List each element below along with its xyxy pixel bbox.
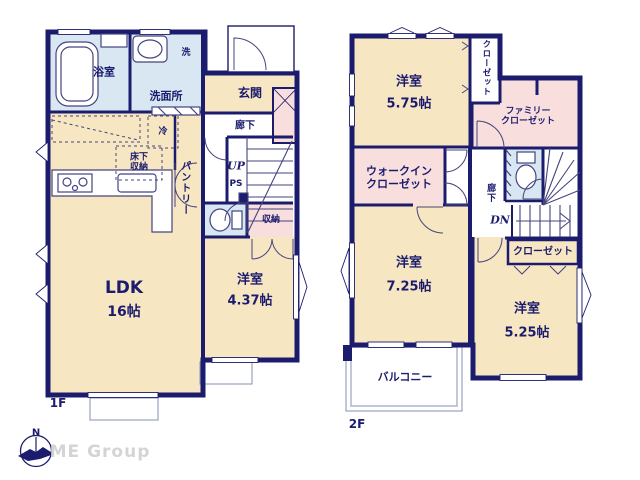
underfloor-storage-line1: 床下 bbox=[130, 153, 148, 163]
wic-line1: ウォークイン bbox=[366, 165, 432, 178]
room-size-bedroom2-2f: 7.25帖 bbox=[386, 281, 431, 296]
sliding-door-washroom bbox=[152, 107, 200, 115]
family-closet-line1: ファミリー bbox=[501, 107, 555, 117]
bedroom2-area-2f bbox=[352, 205, 470, 345]
floor-label-2f: 2F bbox=[349, 418, 366, 432]
room-label-bedroom-1f: 洋室 bbox=[237, 274, 263, 289]
room-label-wic: ウォークイン クローゼット bbox=[366, 165, 432, 190]
label-laundry: 洗 bbox=[181, 48, 190, 58]
compass-icon bbox=[18, 436, 54, 467]
room-label-bathroom: 浴室 bbox=[93, 67, 115, 80]
bedroom1-area-2f bbox=[352, 36, 470, 147]
porch-outline bbox=[228, 26, 294, 72]
room-label-closet-top-2f: クローゼット bbox=[480, 40, 490, 97]
toilet-icon-1f bbox=[210, 209, 242, 231]
room-label-bedroom3-2f: 洋室 bbox=[514, 303, 540, 318]
room-label-storage-1f: 収納 bbox=[262, 215, 280, 225]
room-size-ldk: 16帖 bbox=[107, 304, 140, 320]
room-label-bedroom1-2f: 洋室 bbox=[396, 76, 422, 91]
bay-window-2f-left bbox=[341, 248, 349, 294]
bay-window-1f bbox=[299, 262, 307, 312]
entrance-cabinet bbox=[273, 88, 297, 143]
ldk-area bbox=[48, 112, 203, 395]
floor-label-1f: 1F bbox=[50, 397, 67, 411]
compass-north-label: N bbox=[32, 427, 40, 439]
label-underfloor-storage: 床下 収納 bbox=[130, 153, 148, 174]
room-label-balcony: バルコニー bbox=[378, 372, 433, 385]
label-stairs-down: DN bbox=[490, 215, 510, 228]
room-label-entrance: 玄関 bbox=[238, 87, 262, 101]
hallway-area-2f bbox=[445, 148, 505, 205]
washbasin-icon bbox=[133, 36, 167, 62]
room-label-washroom: 洗面所 bbox=[150, 91, 183, 104]
label-fridge: 冷 bbox=[158, 127, 167, 137]
label-pipe-space: PS bbox=[229, 179, 242, 189]
kitchen-sink-icon bbox=[118, 174, 156, 192]
floorplan-canvas: 浴室 洗面所 洗 玄関 廊下 UP PS パントリー 冷 床下 収納 収納 LD… bbox=[0, 0, 640, 480]
vent-window-1 bbox=[36, 142, 48, 162]
logo-text: ME Group bbox=[50, 442, 151, 462]
underfloor-storage-line2: 収納 bbox=[130, 163, 148, 173]
vent-window-2 bbox=[36, 244, 48, 264]
bay-window-2f-right bbox=[582, 272, 591, 318]
room-size-bedroom-1f: 4.37帖 bbox=[227, 295, 272, 310]
room-label-family-closet: ファミリー クローゼット bbox=[501, 107, 555, 128]
room-label-bedroom2-2f: 洋室 bbox=[396, 257, 422, 272]
room-label-hallway-2f: 廊下 bbox=[485, 183, 495, 203]
pipe-space-box bbox=[239, 193, 248, 203]
family-closet-line2: クローゼット bbox=[501, 117, 555, 127]
wic-line2: クローゼット bbox=[366, 178, 432, 191]
label-stairs-up: UP bbox=[227, 161, 245, 174]
room-size-bedroom1-2f: 5.75帖 bbox=[386, 98, 431, 113]
room-size-bedroom3-2f: 5.25帖 bbox=[504, 327, 549, 342]
room-label-closet-mid-2f: クローゼット bbox=[513, 246, 573, 258]
room-label-hallway-1f: 廊下 bbox=[235, 120, 255, 132]
bath-counter-icon bbox=[101, 34, 127, 47]
room-label-ldk: LDK bbox=[105, 279, 143, 299]
bathtub-icon bbox=[56, 42, 98, 106]
vent-window-3 bbox=[36, 284, 48, 304]
room-label-pantry: パントリー bbox=[178, 161, 190, 216]
